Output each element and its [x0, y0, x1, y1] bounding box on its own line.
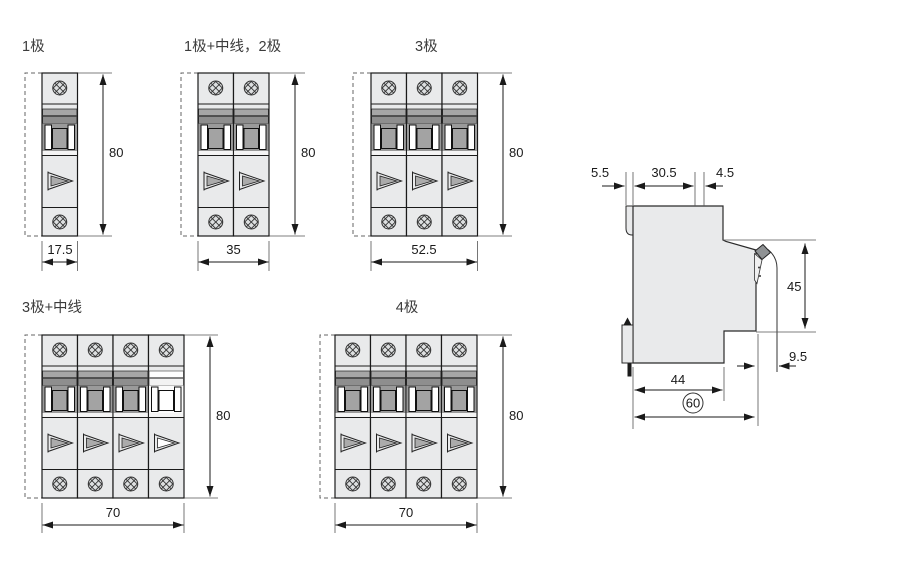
- din-claw-top: [626, 206, 633, 235]
- breaker-module: [442, 73, 478, 236]
- drawing-svg: 1极 80 17.5 1极+中线，2极 80 35 3极 80 52.5: [0, 0, 900, 570]
- breaker-side-body: [633, 206, 756, 363]
- figure-1-pole-neutral-2-pole: 1极+中线，2极 80 35: [181, 38, 315, 271]
- dashed-module-outline: [320, 335, 335, 498]
- width-dim-label: 35: [226, 242, 240, 257]
- figure-label: 1极+中线，2极: [184, 38, 282, 55]
- din-clip-bottom: [622, 325, 633, 363]
- breaker-module: [234, 73, 270, 236]
- figure-label: 4极: [396, 299, 419, 316]
- figure-label: 3极+中线: [22, 299, 82, 316]
- height-dim-label: 80: [109, 145, 123, 160]
- figure-side-view: 5.5 30.5 4.5 45 9.5 44 60: [591, 165, 816, 429]
- figure-4-pole: 4极 80 70: [320, 299, 523, 533]
- front-step-label: 4.5: [716, 165, 734, 180]
- breaker-module: [335, 335, 371, 498]
- breaker-module: [371, 335, 407, 498]
- width-dim-label: 52.5: [411, 242, 436, 257]
- figure-3-pole: 3极 80 52.5: [353, 38, 523, 271]
- breaker-module: [42, 335, 78, 498]
- breaker-module: [442, 335, 478, 498]
- height-dim-label: 80: [301, 145, 315, 160]
- breaker-module: [406, 335, 442, 498]
- dashed-module-outline: [25, 73, 42, 236]
- front-height-label: 45: [787, 279, 801, 294]
- figure-label: 3极: [415, 38, 438, 55]
- din-clip-arrow: [624, 318, 632, 326]
- breaker-module: [113, 335, 149, 498]
- dashed-module-outline: [25, 335, 42, 498]
- width-dim-label: 70: [399, 505, 413, 520]
- figure-3-pole-neutral: 3极+中线 80 70: [22, 299, 230, 533]
- dashed-module-outline: [353, 73, 371, 236]
- figure-1-pole: 1极 80 17.5: [22, 38, 123, 271]
- breaker-module-neutral: [149, 335, 185, 498]
- breaker-module: [371, 73, 407, 236]
- breaker-module: [42, 73, 78, 236]
- breaker-module: [78, 335, 114, 498]
- width-dim-label: 17.5: [47, 242, 72, 257]
- height-dim-label: 80: [216, 408, 230, 423]
- overall-depth-label: 60: [686, 396, 700, 411]
- din-clip-tab: [628, 364, 632, 377]
- width-dim-label: 70: [106, 505, 120, 520]
- din-depth-label: 5.5: [591, 165, 609, 180]
- top-width-label: 30.5: [651, 165, 676, 180]
- figure-label: 1极: [22, 38, 45, 55]
- dashed-module-outline: [181, 73, 198, 236]
- height-dim-label: 80: [509, 145, 523, 160]
- breaker-module: [407, 73, 443, 236]
- base-width-label: 44: [671, 372, 685, 387]
- breaker-module: [198, 73, 234, 236]
- lever-dim-label: 9.5: [789, 349, 807, 364]
- dimension-drawing: 1极 80 17.5 1极+中线，2极 80 35 3极 80 52.5: [0, 0, 900, 570]
- height-dim-label: 80: [509, 408, 523, 423]
- lever-travel-arc: [768, 250, 777, 373]
